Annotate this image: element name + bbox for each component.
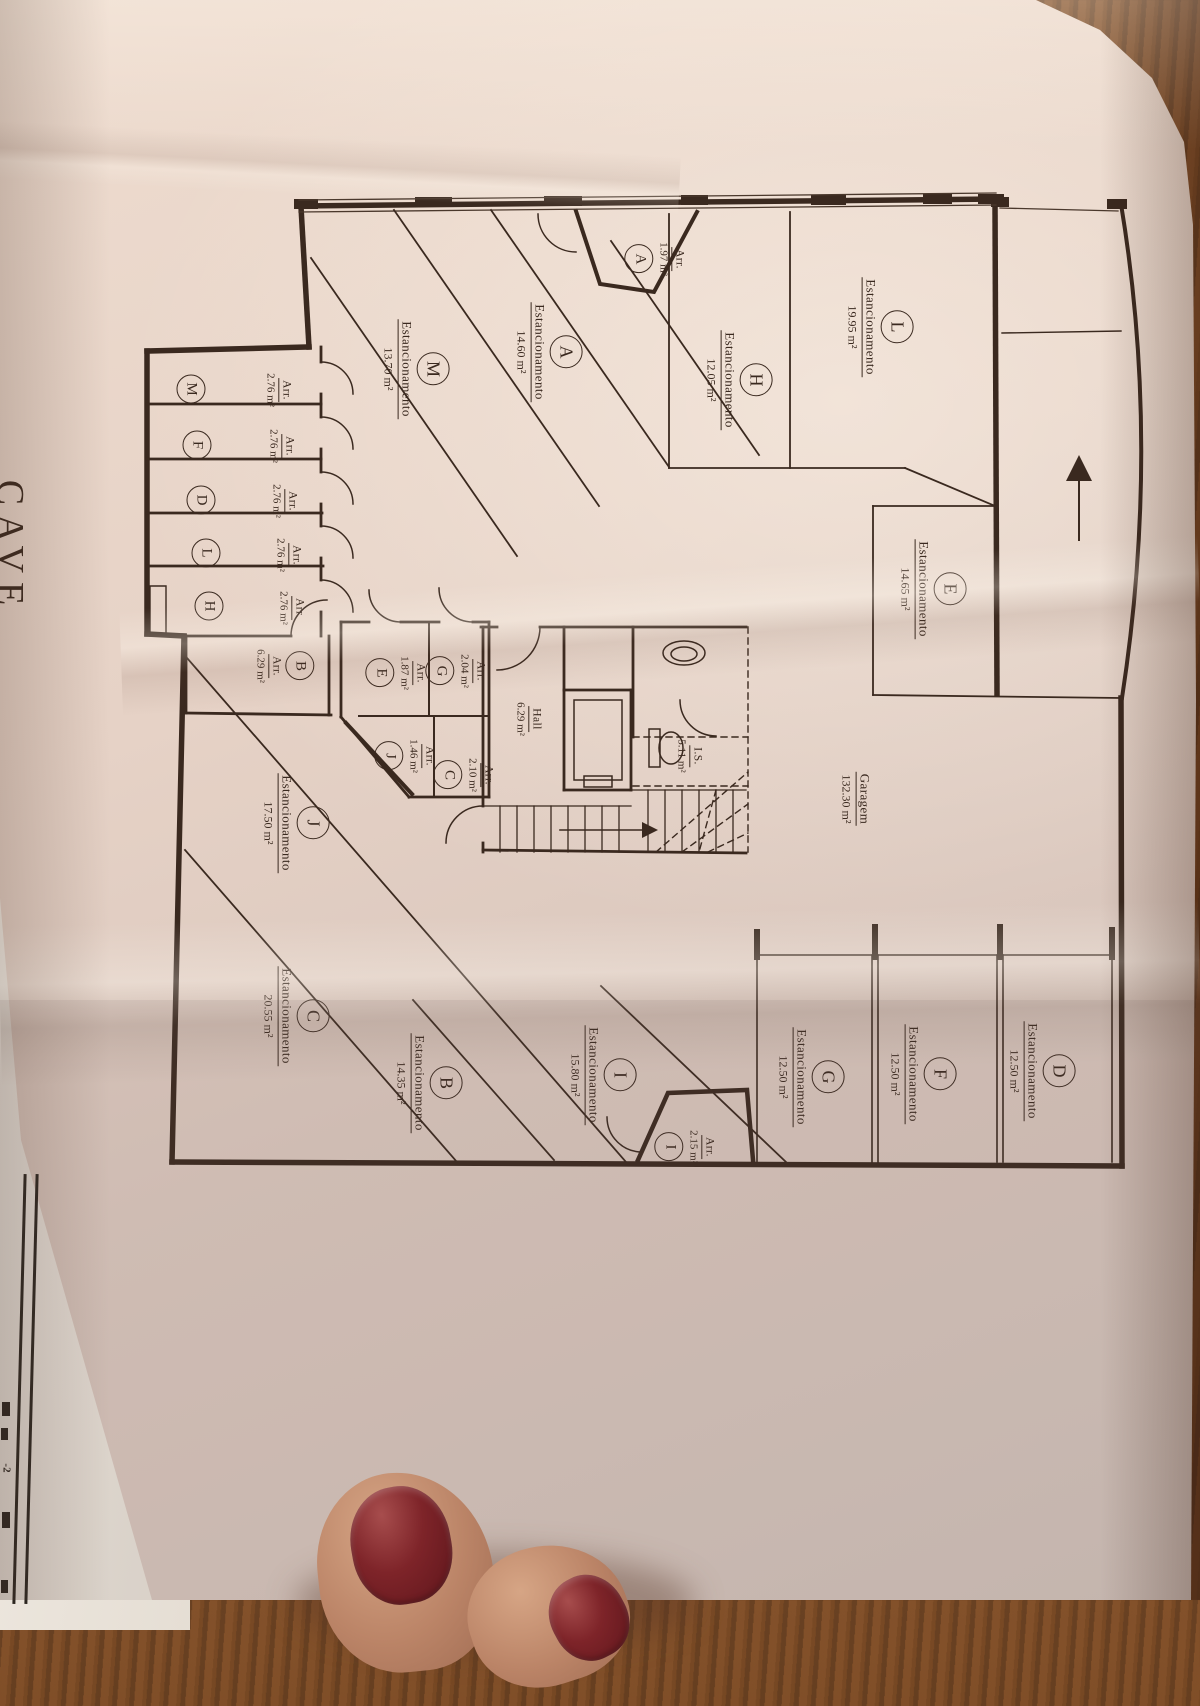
parking-name: Estancionamento — [1024, 1021, 1040, 1121]
storage-name: Arr. — [701, 1135, 715, 1159]
room-label-storage-C: Arr. 2.10 m² C — [434, 758, 495, 792]
cut-off-text-mark — [1, 1580, 8, 1593]
storage-area: 2.15 m² — [687, 1130, 699, 1164]
room-label-parking-F: F Estancionamento 12.50 m² — [889, 1024, 956, 1124]
room-label-parking-E: E Estancionamento 14.65 m² — [899, 539, 966, 639]
parking-area: 20.55 m² — [262, 995, 275, 1038]
under-sheet-border — [0, 1160, 60, 1600]
parking-area: 12.05 m² — [705, 359, 718, 402]
storage-circle-C: C — [434, 760, 463, 789]
room-label-parking-I: I Estancionamento 15.80 m² — [569, 1025, 636, 1125]
storage-area: 2.76 m² — [267, 429, 279, 463]
storage-area: 2.04 m² — [458, 654, 470, 688]
parking-circle-A: A — [550, 336, 583, 369]
cut-off-text-mark — [2, 1512, 10, 1528]
parking-name: Estancionamento — [398, 319, 414, 419]
room-label-storage-J: Arr. 1.46 m² J — [375, 739, 436, 773]
storage-name: Arr. — [480, 763, 494, 787]
door-arcs — [291, 214, 716, 1152]
parking-circle-C: C — [297, 1000, 330, 1033]
parking-circle-L: L — [881, 311, 914, 344]
storage-circle-F: F — [183, 431, 212, 460]
storage-circle-J: J — [375, 741, 404, 770]
room-label-parking-A: A Estancionamento 14.60 m² — [515, 302, 582, 402]
storage-area: 1.87 m² — [398, 656, 410, 690]
storage-area: 2.76 m² — [277, 591, 289, 625]
storage-area: 2.10 m² — [466, 758, 478, 792]
storage-circle-B: B — [285, 651, 314, 680]
room-label-parking-J: J Estancionamento 17.50 m² — [262, 773, 329, 873]
storage-name: Arr. — [278, 378, 292, 402]
parking-name: Estancionamento — [793, 1027, 809, 1127]
storage-area: 1.97 m² — [657, 242, 669, 276]
stairs — [483, 790, 746, 852]
room-label-storage-I: Arr. 2.15 m² I — [655, 1130, 716, 1164]
storage-circle-H: H — [195, 592, 224, 621]
storage-name: Arr. — [412, 661, 426, 685]
storage-name: Arr. — [288, 543, 302, 567]
floor-plan-sheet: L Estancionamento 19.95 m² H Estancionam… — [0, 0, 1200, 1600]
storage-label-D: Arr. 2.76 m² — [270, 484, 299, 518]
storage-area: 2.76 m² — [270, 484, 282, 518]
parking-circle-I: I — [604, 1059, 637, 1092]
parking-circle-D: D — [1043, 1055, 1076, 1088]
parking-area: 15.80 m² — [569, 1054, 582, 1097]
storage-area: 2.76 m² — [264, 373, 276, 407]
parking-circle-G: G — [812, 1061, 845, 1094]
room-label-parking-L: L Estancionamento 19.95 m² — [846, 277, 913, 377]
room-label-storage-A: Arr. 1.97 m² A — [625, 242, 686, 276]
storage-name: Arr. — [268, 654, 282, 678]
parking-row-wall-stubs — [757, 927, 1112, 957]
parking-name: Estancionamento — [915, 539, 931, 639]
storage-circle-A: A — [625, 244, 654, 273]
sheet-title: CAVE — [0, 480, 32, 615]
room-label-parking-B: B Estancionamento 14.35 m² — [395, 1033, 462, 1133]
parking-area: 13.70 m² — [382, 348, 395, 391]
garage-name: Garagem — [856, 772, 872, 826]
storage-circle-I: I — [655, 1132, 684, 1161]
room-label-storage-G: Arr. 2.04 m² G — [426, 654, 487, 688]
storage-name: Arr. — [281, 434, 295, 458]
sheet-corner-mark: -2 — [1, 1463, 13, 1472]
parking-circle-H: H — [740, 364, 773, 397]
parking-area: 14.60 m² — [515, 331, 528, 374]
parking-name: Estancionamento — [862, 277, 878, 377]
room-label-parking-G: G Estancionamento 12.50 m² — [777, 1027, 844, 1127]
parking-circle-F: F — [924, 1058, 957, 1091]
hall-name: Hall — [528, 706, 542, 731]
storage-name: Arr. — [671, 247, 685, 271]
storage-name: Arr. — [291, 596, 305, 620]
storage-label-H: Arr. 2.76 m² — [277, 591, 306, 625]
parking-circle-E: E — [934, 573, 967, 606]
storage-label-L: Arr. 2.76 m² — [274, 538, 303, 572]
garage-area: 132.30 m² — [840, 775, 853, 824]
entrance-arrow-icon — [1066, 455, 1092, 481]
room-label-garage: Garagem 132.30 m² — [840, 772, 871, 826]
stairs-arrow-icon — [642, 822, 658, 838]
storage-circle-M: M — [177, 375, 206, 404]
parking-area: 12.50 m² — [889, 1053, 902, 1096]
storage-circle-L: L — [192, 539, 221, 568]
parking-area: 14.35 m² — [395, 1062, 408, 1105]
storage-circle-D: D — [187, 486, 216, 515]
parking-name: Estancionamento — [278, 773, 294, 873]
parking-area: 12.50 m² — [777, 1056, 790, 1099]
parking-name: Estancionamento — [411, 1033, 427, 1133]
storage-circle-G: G — [426, 656, 455, 685]
floor-plan-drawing — [0, 0, 1200, 1600]
border-line — [24, 1174, 38, 1604]
parking-circle-B: B — [430, 1067, 463, 1100]
parking-area: 12.50 m² — [1008, 1050, 1021, 1093]
storage-label-M: Arr. 2.76 m² — [264, 373, 293, 407]
room-label-parking-M: M Estancionamento 13.70 m² — [382, 319, 449, 419]
parking-name: Estancionamento — [585, 1025, 601, 1125]
room-label-parking-H: H Estancionamento 12.05 m² — [705, 330, 772, 430]
fingernail — [342, 1479, 461, 1613]
storage-area: 1.46 m² — [407, 739, 419, 773]
parking-circle-M: M — [417, 353, 450, 386]
storage-area: 6.29 m² — [254, 649, 266, 683]
storage-circle-E: E — [366, 658, 395, 687]
room-label-hall: Hall 6.29 m² — [514, 702, 543, 736]
wc-name: I.S. — [689, 745, 703, 767]
cut-off-text-mark — [1, 1428, 8, 1440]
ramp-curved-wall — [1121, 204, 1141, 698]
room-label-parking-D: D Estancionamento 12.50 m² — [1008, 1021, 1075, 1121]
hall-area: 6.29 m² — [514, 702, 526, 736]
room-label-storage-E: Arr. 1.87 m² E — [366, 656, 427, 690]
storage-name: Arr. — [472, 659, 486, 683]
parking-name: Estancionamento — [905, 1024, 921, 1124]
parking-area: 14.65 m² — [899, 568, 912, 611]
parking-area: 19.95 m² — [846, 306, 859, 349]
storage-name: Arr. — [284, 489, 298, 513]
parking-name: Estancionamento — [531, 302, 547, 402]
room-label-storage-B: B Arr. 6.29 m² — [254, 649, 315, 683]
storage-label-F: Arr. 2.76 m² — [267, 429, 296, 463]
room-label-wc: I.S. 5.11 m² — [675, 739, 704, 772]
storage-area: 2.76 m² — [274, 538, 286, 572]
parking-circle-J: J — [297, 807, 330, 840]
cut-off-text-mark — [2, 1402, 10, 1416]
room-label-parking-C: C Estancionamento 20.55 m² — [262, 966, 329, 1066]
border-line — [12, 1174, 26, 1604]
parking-area: 17.50 m² — [262, 802, 275, 845]
parking-name: Estancionamento — [278, 966, 294, 1066]
wc-area: 5.11 m² — [675, 739, 687, 772]
parking-name: Estancionamento — [721, 330, 737, 430]
